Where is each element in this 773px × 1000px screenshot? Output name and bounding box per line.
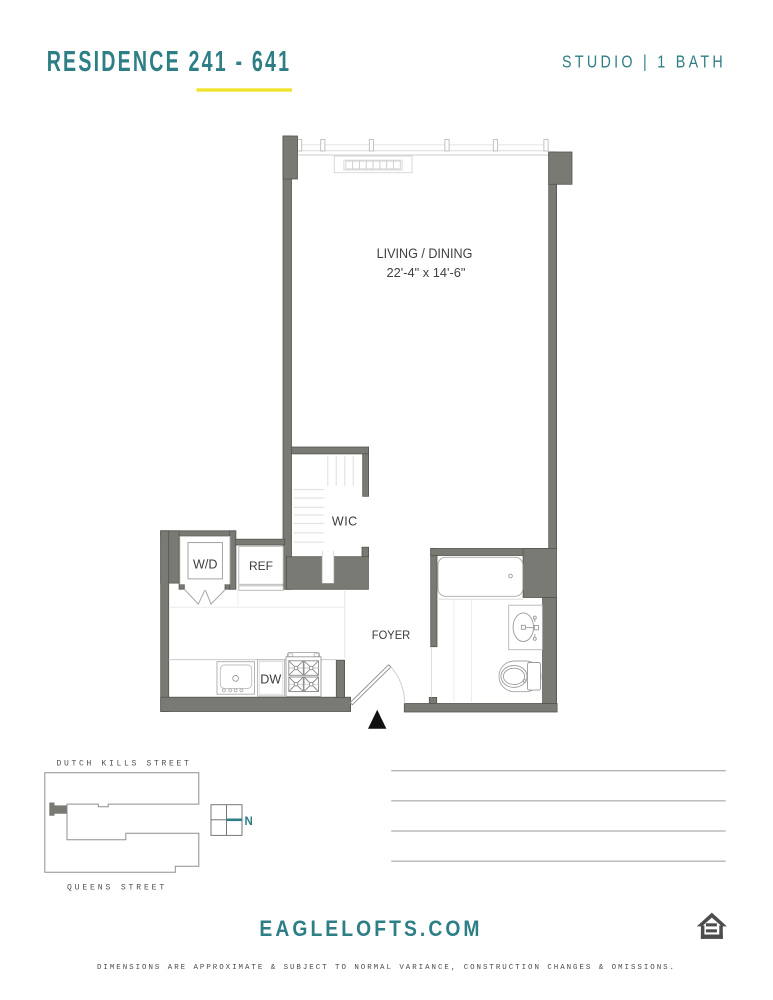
svg-text:DIMENSIONS ARE APPROXIMATE & S: DIMENSIONS ARE APPROXIMATE & SUBJECT TO …	[97, 964, 676, 972]
svg-text:W/D: W/D	[193, 557, 217, 571]
svg-text:LIVING / DINING: LIVING / DINING	[377, 246, 473, 261]
svg-text:FOYER: FOYER	[372, 628, 411, 642]
svg-text:QUEENS STREET: QUEENS STREET	[67, 884, 167, 893]
svg-text:DW: DW	[260, 673, 281, 687]
svg-text:22'-4" x 14'-6": 22'-4" x 14'-6"	[387, 265, 466, 280]
svg-text:EAGLELOFTS.COM: EAGLELOFTS.COM	[259, 916, 482, 941]
svg-text:N: N	[245, 816, 253, 828]
svg-text:STUDIO | 1 BATH: STUDIO | 1 BATH	[562, 51, 726, 71]
svg-text:WIC: WIC	[332, 515, 358, 529]
svg-text:REF: REF	[249, 559, 273, 573]
svg-text:DUTCH KILLS STREET: DUTCH KILLS STREET	[56, 760, 191, 769]
svg-text:RESIDENCE 241 - 641: RESIDENCE 241 - 641	[47, 46, 292, 78]
